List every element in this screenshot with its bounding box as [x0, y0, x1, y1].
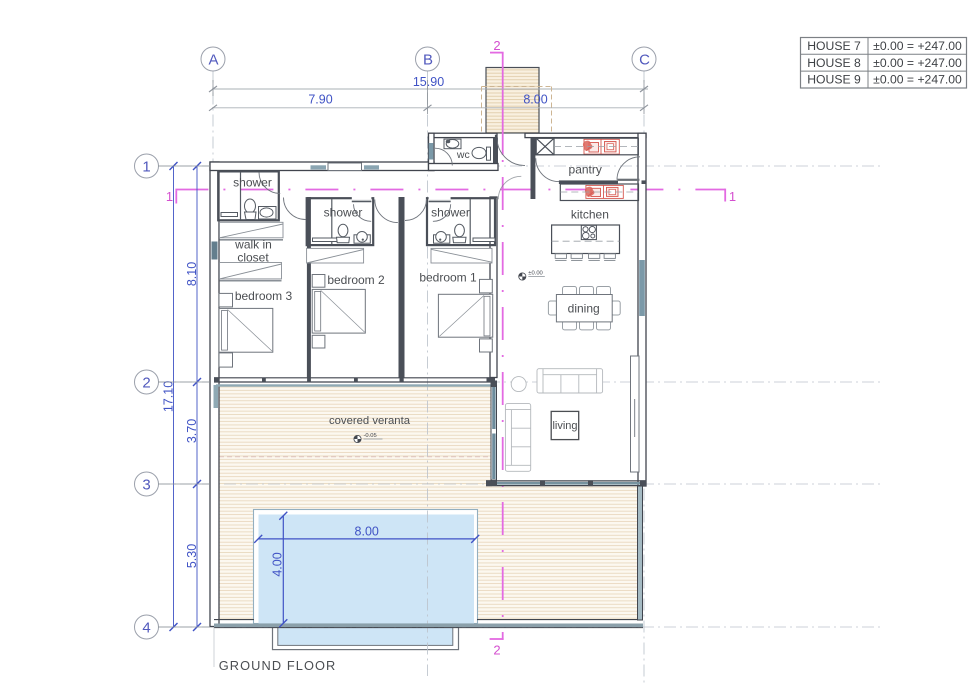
- svg-text:3.70: 3.70: [185, 419, 199, 443]
- svg-text:15.90: 15.90: [413, 75, 444, 89]
- svg-text:±0.00 = +247.00: ±0.00 = +247.00: [873, 56, 962, 70]
- svg-text:wc: wc: [456, 149, 470, 161]
- svg-text:2: 2: [493, 38, 500, 53]
- svg-text:±0.00: ±0.00: [528, 271, 542, 277]
- svg-text:1: 1: [142, 158, 150, 175]
- svg-text:A: A: [208, 51, 218, 68]
- svg-text:4: 4: [142, 619, 150, 636]
- svg-text:living: living: [552, 420, 577, 432]
- svg-text:dining: dining: [568, 301, 600, 315]
- svg-text:17.10: 17.10: [161, 381, 175, 412]
- svg-text:covered veranta: covered veranta: [329, 415, 411, 427]
- svg-text:shower: shower: [324, 206, 363, 220]
- svg-text:HOUSE 9: HOUSE 9: [807, 73, 861, 87]
- svg-text:B: B: [423, 51, 433, 68]
- svg-text:3: 3: [142, 476, 150, 493]
- svg-text:±0.00 = +247.00: ±0.00 = +247.00: [873, 73, 962, 87]
- svg-text:HOUSE 7: HOUSE 7: [807, 39, 861, 53]
- svg-text:shower: shower: [233, 176, 272, 190]
- svg-text:closet: closet: [237, 250, 269, 264]
- svg-text:8.00: 8.00: [355, 525, 379, 539]
- svg-text:-0.05: -0.05: [364, 433, 377, 439]
- svg-text:pantry: pantry: [569, 162, 602, 176]
- svg-text:8.00: 8.00: [523, 93, 547, 107]
- svg-text:kitchen: kitchen: [571, 207, 609, 221]
- svg-text:±0.00 = +247.00: ±0.00 = +247.00: [873, 39, 962, 53]
- svg-text:HOUSE 8: HOUSE 8: [807, 56, 861, 70]
- svg-text:5.30: 5.30: [185, 544, 199, 568]
- svg-text:4.00: 4.00: [271, 552, 285, 576]
- svg-text:1: 1: [166, 189, 173, 204]
- svg-text:GROUND FLOOR: GROUND FLOOR: [219, 658, 337, 673]
- svg-text:bedroom 2: bedroom 2: [327, 273, 385, 287]
- svg-text:1: 1: [729, 189, 736, 204]
- svg-text:bedroom 1: bedroom 1: [419, 271, 477, 285]
- svg-text:shower: shower: [431, 206, 470, 220]
- svg-text:C: C: [639, 51, 650, 68]
- svg-text:8.10: 8.10: [185, 262, 199, 286]
- svg-text:7.90: 7.90: [308, 93, 332, 107]
- svg-text:2: 2: [142, 374, 150, 391]
- svg-text:2: 2: [493, 643, 500, 658]
- svg-text:bedroom 3: bedroom 3: [235, 289, 293, 303]
- svg-text:walk in: walk in: [234, 237, 272, 251]
